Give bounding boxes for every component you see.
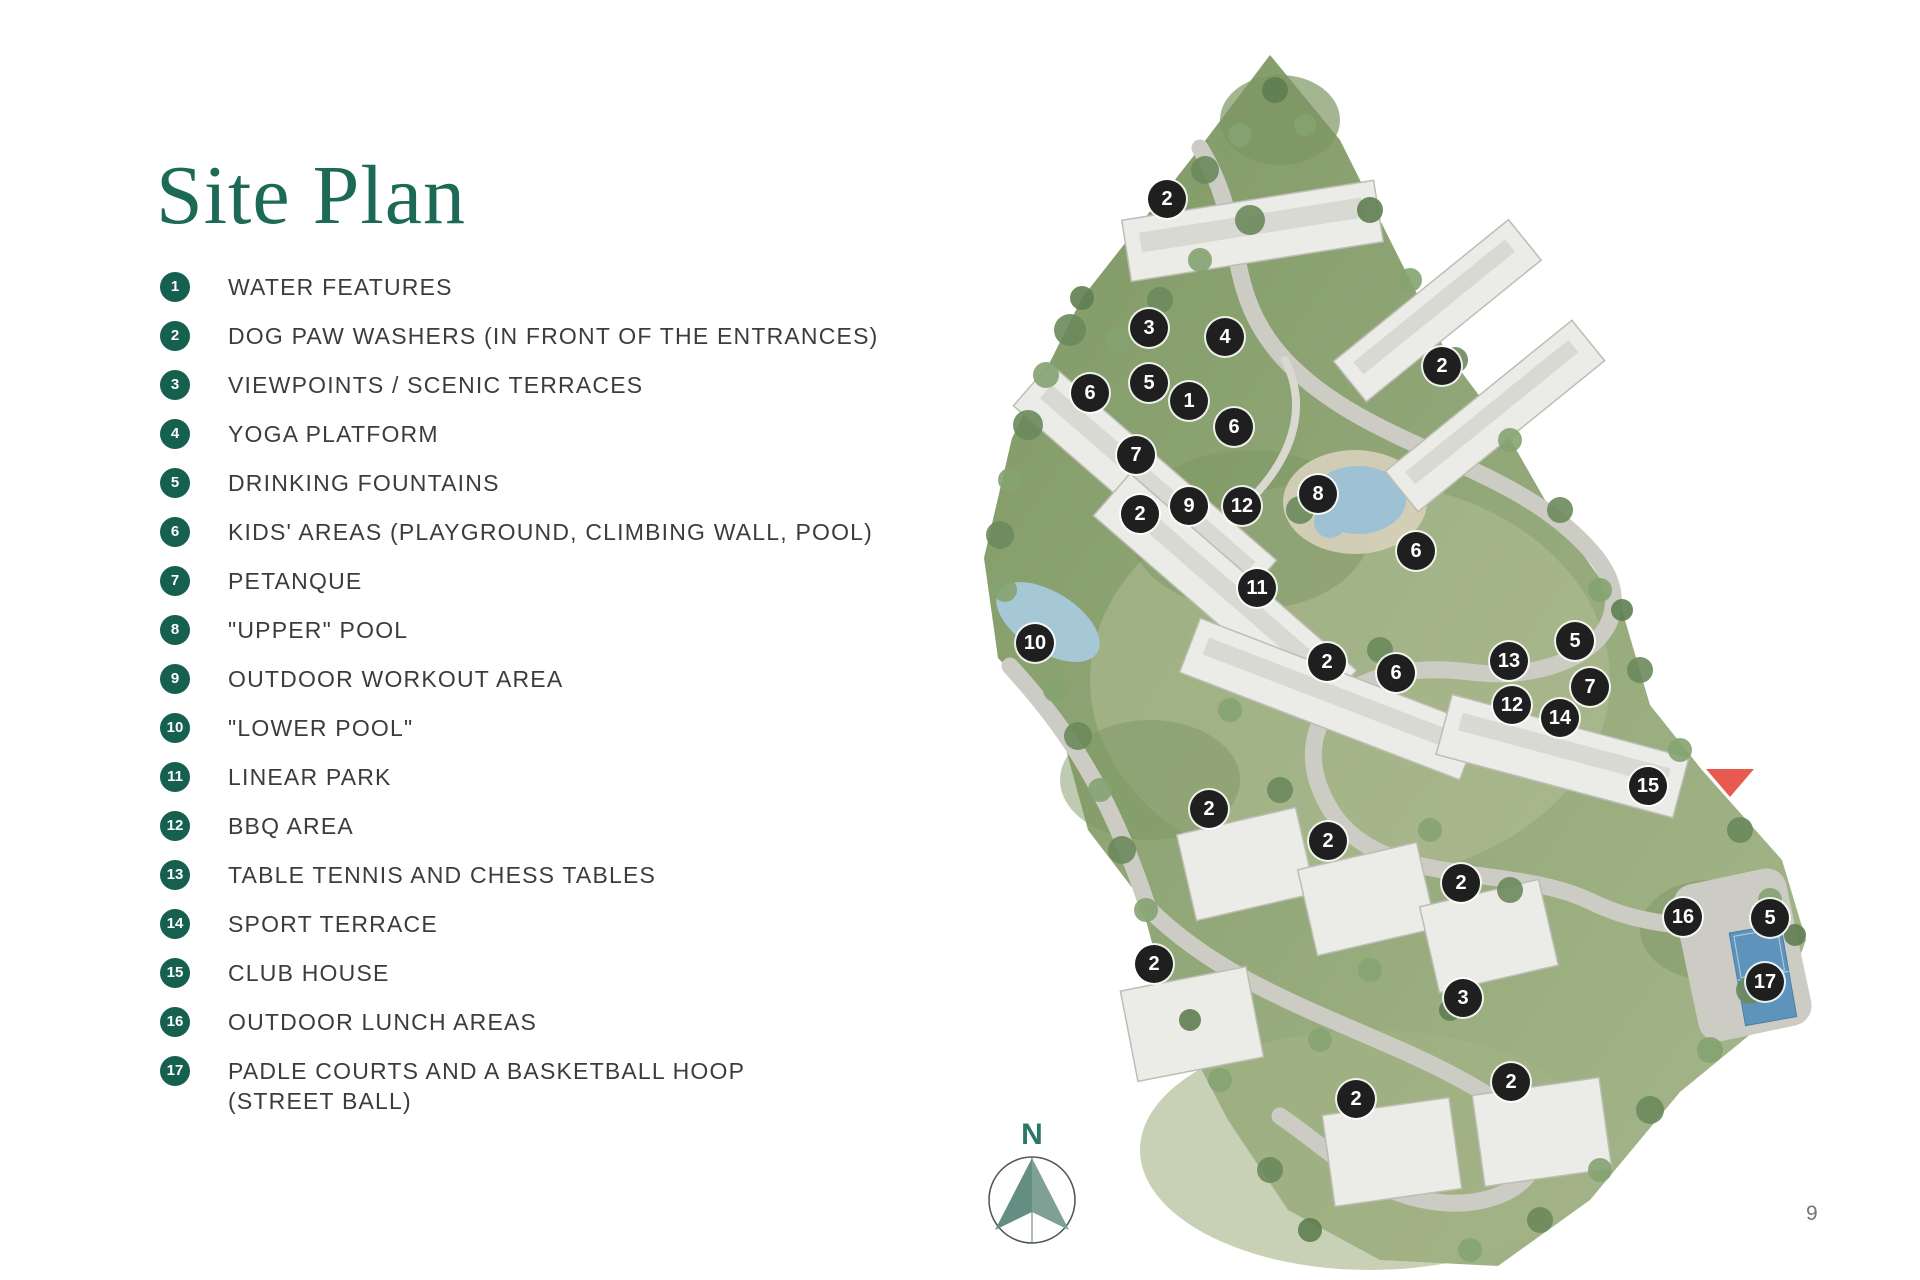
legend-number-badge: 4 — [160, 419, 190, 449]
legend-number-badge: 10 — [160, 713, 190, 743]
legend-item-6: 6KIDS' AREAS (PLAYGROUND, CLIMBING WALL,… — [160, 517, 960, 547]
legend-number-badge: 5 — [160, 468, 190, 498]
legend-item-7: 7PETANQUE — [160, 566, 960, 596]
legend-item-12: 12BBQ AREA — [160, 811, 960, 841]
legend-number-badge: 6 — [160, 517, 190, 547]
legend-item-4: 4YOGA PLATFORM — [160, 419, 960, 449]
legend-number-badge: 16 — [160, 1007, 190, 1037]
legend-item-11: 11LINEAR PARK — [160, 762, 960, 792]
legend-item-label: SPORT TERRACE — [228, 909, 438, 939]
legend-item-13: 13TABLE TENNIS AND CHESS TABLES — [160, 860, 960, 890]
legend-item-label: BBQ AREA — [228, 811, 354, 841]
legend-item-label-line2: (STREET BALL) — [228, 1086, 745, 1116]
legend-item-label: OUTDOOR WORKOUT AREA — [228, 664, 563, 694]
legend-item-10: 10"LOWER POOL" — [160, 713, 960, 743]
legend-item-2: 2DOG PAW WASHERS (IN FRONT OF THE ENTRAN… — [160, 321, 960, 351]
legend-item-label: PETANQUE — [228, 566, 362, 596]
legend-item-label: LINEAR PARK — [228, 762, 392, 792]
compass-needle-right — [1032, 1158, 1069, 1230]
legend-number-badge: 13 — [160, 860, 190, 890]
legend-number-badge: 17 — [160, 1056, 190, 1086]
legend-number-badge: 11 — [160, 762, 190, 792]
legend-item-1: 1WATER FEATURES — [160, 272, 960, 302]
legend-item-14: 14SPORT TERRACE — [160, 909, 960, 939]
compass: N — [975, 1108, 1090, 1253]
legend-item-3: 3VIEWPOINTS / SCENIC TERRACES — [160, 370, 960, 400]
legend-item-label: YOGA PLATFORM — [228, 419, 439, 449]
legend-item-16: 16OUTDOOR LUNCH AREAS — [160, 1007, 960, 1037]
legend-item-17: 17PADLE COURTS AND A BASKETBALL HOOP(STR… — [160, 1056, 960, 1116]
legend-item-label: VIEWPOINTS / SCENIC TERRACES — [228, 370, 643, 400]
page-title: Site Plan — [156, 152, 466, 240]
legend-item-label: OUTDOOR LUNCH AREAS — [228, 1007, 537, 1037]
legend-item-8: 8"UPPER" POOL — [160, 615, 960, 645]
legend-number-badge: 2 — [160, 321, 190, 351]
legend-number-badge: 12 — [160, 811, 190, 841]
legend-item-label: TABLE TENNIS AND CHESS TABLES — [228, 860, 656, 890]
legend-number-badge: 9 — [160, 664, 190, 694]
legend-number-badge: 3 — [160, 370, 190, 400]
legend-number-badge: 14 — [160, 909, 190, 939]
legend-number-badge: 8 — [160, 615, 190, 645]
legend-item-9: 9OUTDOOR WORKOUT AREA — [160, 664, 960, 694]
location-pin-icon — [1706, 769, 1754, 797]
legend-number-badge: 1 — [160, 272, 190, 302]
legend: 1WATER FEATURES2DOG PAW WASHERS (IN FRON… — [160, 272, 960, 1135]
legend-item-label: PADLE COURTS AND A BASKETBALL HOOP — [228, 1056, 745, 1086]
legend-item-label: DOG PAW WASHERS (IN FRONT OF THE ENTRANC… — [228, 321, 878, 351]
legend-item-5: 5DRINKING FOUNTAINS — [160, 468, 960, 498]
legend-item-label: DRINKING FOUNTAINS — [228, 468, 500, 498]
legend-item-label: "LOWER POOL" — [228, 713, 413, 743]
legend-number-badge: 15 — [160, 958, 190, 988]
site-map-illustration — [950, 30, 1830, 1280]
legend-item-label: KIDS' AREAS (PLAYGROUND, CLIMBING WALL, … — [228, 517, 873, 547]
legend-item-15: 15CLUB HOUSE — [160, 958, 960, 988]
legend-number-badge: 7 — [160, 566, 190, 596]
compass-needle-left — [995, 1158, 1032, 1230]
legend-item-label: WATER FEATURES — [228, 272, 453, 302]
legend-item-label: CLUB HOUSE — [228, 958, 390, 988]
compass-north-label: N — [1021, 1118, 1043, 1151]
legend-item-label: "UPPER" POOL — [228, 615, 408, 645]
